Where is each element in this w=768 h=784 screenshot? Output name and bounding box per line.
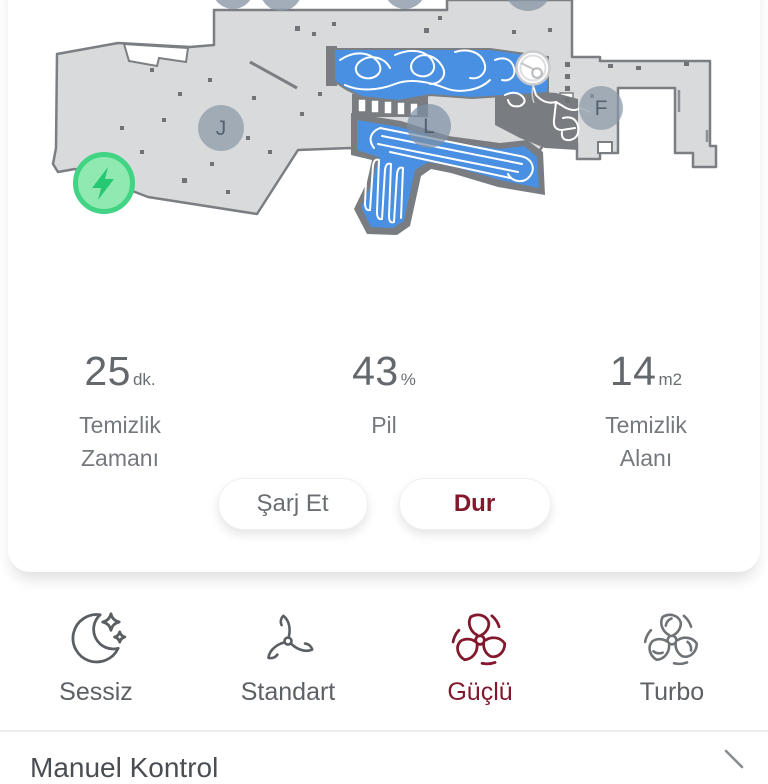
fan-mode-sessiz[interactable]: Sessiz <box>0 604 192 707</box>
fan-mode-turbo[interactable]: Turbo <box>576 604 768 707</box>
room-label: L <box>423 115 435 138</box>
chevron-right-icon <box>718 748 748 770</box>
room-circle-partial <box>212 0 254 9</box>
stat-label: Pil <box>318 409 450 442</box>
fan-strong-icon <box>447 604 513 672</box>
stat-value: 14 <box>610 348 657 395</box>
map-svg[interactable]: J L F <box>8 0 760 244</box>
stat-cleaned-area: 14 m2 Temizlik Alanı <box>526 348 760 475</box>
stat-unit: m2 <box>658 370 682 390</box>
stat-value: 43 <box>352 348 399 395</box>
section-divider <box>0 730 768 732</box>
room-j[interactable]: J <box>198 105 244 151</box>
fan-mode-label: Sessiz <box>59 678 133 707</box>
room-l[interactable]: L <box>407 104 451 148</box>
room-label: J <box>216 117 227 140</box>
fan-mode-guclu[interactable]: Güçlü <box>384 604 576 707</box>
fan-mode-label: Turbo <box>640 678 704 707</box>
manual-control-row[interactable]: Manuel Kontrol <box>0 748 768 768</box>
room-f[interactable]: F <box>579 86 623 130</box>
fan-mode-label: Standart <box>241 678 336 707</box>
room-label: F <box>595 97 608 120</box>
stat-value: 25 <box>84 348 131 395</box>
stat-unit: % <box>401 370 416 390</box>
status-card: J L F <box>8 0 760 572</box>
fan-turbo-icon <box>639 604 705 672</box>
charge-button[interactable]: Şarj Et <box>218 478 368 530</box>
room-circle-partial <box>384 0 426 9</box>
stat-unit: dk. <box>133 370 156 390</box>
stat-label: Temizlik Alanı <box>580 409 712 475</box>
stop-button[interactable]: Dur <box>399 478 551 530</box>
stats-row: 25 dk. Temizlik Zamanı 43 % Pil 14 m2 Te… <box>8 348 760 498</box>
action-buttons: Şarj Et Dur <box>8 478 760 530</box>
manual-control-label: Manuel Kontrol <box>30 752 218 784</box>
map-obstacle <box>598 142 612 153</box>
stat-battery: 43 % Pil <box>264 348 504 442</box>
cleaning-map[interactable]: J L F <box>8 0 760 244</box>
fan-mode-standart[interactable]: Standart <box>192 604 384 707</box>
propeller-icon <box>255 604 321 672</box>
stat-label: Temizlik Zamanı <box>54 409 186 475</box>
charger-marker <box>76 155 133 212</box>
moon-sparkles-icon <box>63 604 129 672</box>
fan-mode-row: Sessiz Standart <box>0 604 768 707</box>
fan-mode-label: Güçlü <box>447 678 512 707</box>
stat-cleaning-time: 25 dk. Temizlik Zamanı <box>8 348 240 475</box>
